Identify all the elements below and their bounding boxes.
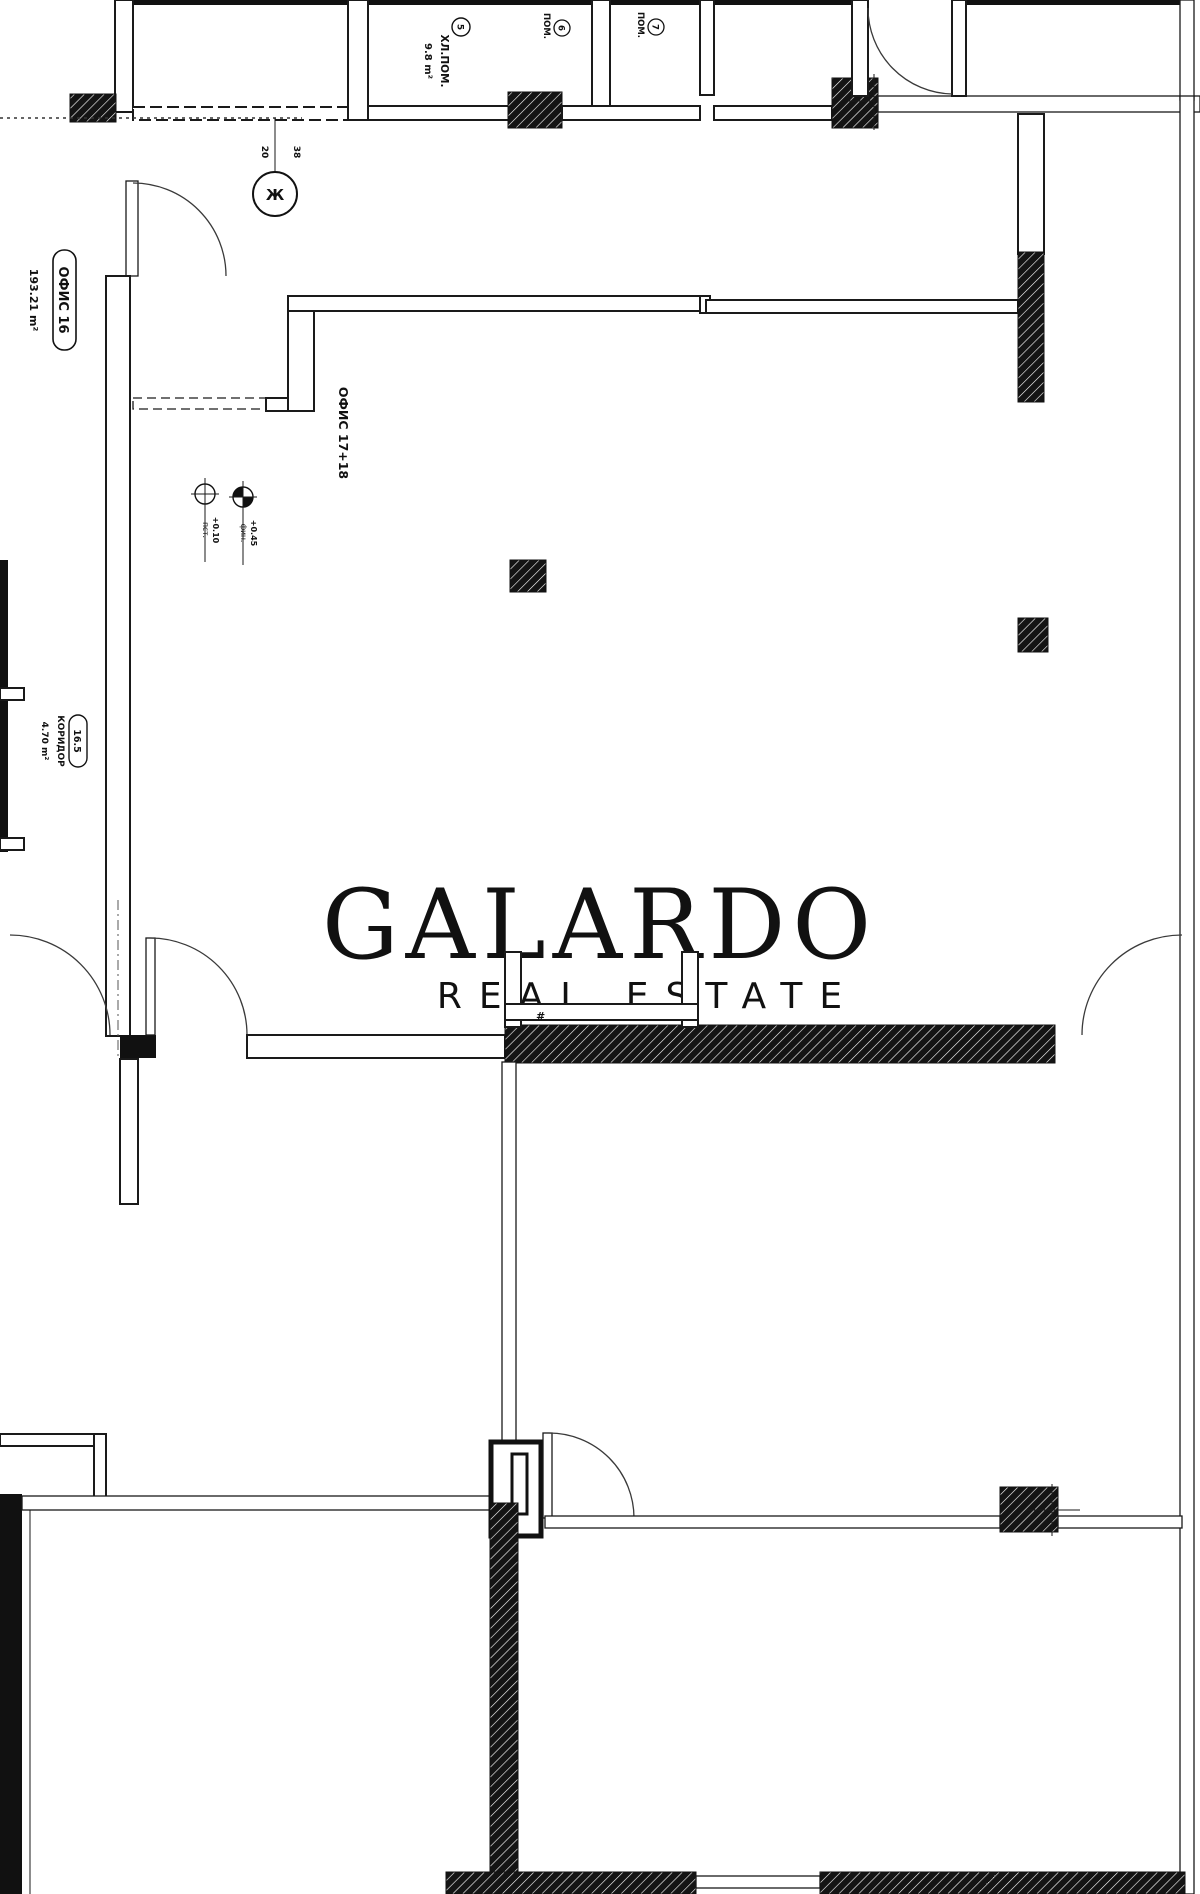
level-marker-right-quadrant-nw [233,487,243,497]
storeroom-name: ХЛ.ПОМ. [438,35,450,88]
room-label-corridor: 16.5 КОРИДОР 4.70 m² [39,715,87,767]
wall-room-divider-a [348,0,368,120]
wall-mid-stub-left [120,1035,156,1058]
corridor-area: 4.70 m² [39,722,49,761]
wall-bottom-hatched-right [820,1872,1185,1894]
room-label-7: 7 ПОМ. [635,12,664,38]
lower-center-walls [490,1062,1182,1894]
corridor-name: КОРИДОР [55,715,65,767]
wall-top-horizontal-3 [714,106,832,120]
axis-dim-a-text: 20 [259,146,269,159]
corridor-tag: 16.5 [71,729,82,752]
wall-mid-hatched [505,1025,1055,1063]
wall-right-edge [1180,96,1194,1894]
hash-mark: # [536,1010,545,1023]
wall-entry-post-right [952,0,966,96]
wall-partition-dashed [133,398,268,409]
storeroom-tag: 5 [455,24,465,30]
door-arc-top-entry [868,8,952,94]
room-label-storeroom: 5 ХЛ.ПОМ. 9.8 m² [422,18,470,87]
wall-pier-top-center [508,92,562,128]
wall-step-vertical [288,296,314,411]
wall-top-horizontal-2 [562,106,700,120]
lower-left-walls [0,1059,492,1894]
wall-top-horizontal-1 [368,106,510,120]
wall-bigroom-top-2 [706,300,1018,313]
wall-bottom-hatched-left [446,1872,696,1894]
storeroom-area: 9.8 m² [422,43,433,79]
office16-area: 193.21 m² [27,269,40,332]
door-leaf-lower [543,1433,552,1518]
room7-tag: 7 [650,24,660,30]
wall-bottom-window [696,1876,820,1888]
level-right-note: фин. [239,524,248,543]
top-strip-walls [70,0,1200,130]
wall-lowerleft-vertical [120,1059,138,1204]
wall-right-solid-bar [1018,252,1044,402]
door-arc-mid-right [1082,935,1182,1035]
floor-plan-drawing: GALARDO REAL ESTATE Ж 20 38 [0,0,1200,1894]
room6-name: ПОМ. [541,13,551,39]
level-right-label: +0.45 фин. [239,520,258,547]
door-arc-corridor [10,935,110,1035]
column-pier-b [1018,618,1048,652]
room-label-office16: ОФИС 16 193.21 m² [27,250,76,350]
level-right-value: +0.45 [249,520,258,547]
bottom-walls [446,1872,1185,1894]
wall-mid-double [247,1035,505,1058]
door-leaf-mid-left [146,938,155,1035]
watermark: GALARDO REAL ESTATE [322,869,878,1017]
axis-dim-b: 38 [291,146,301,159]
watermark-title: GALARDO [322,869,878,981]
room6-tag: 6 [556,25,566,31]
wall-left-stub-2 [0,838,24,850]
office16-name: ОФИС 16 [55,267,70,334]
level-left-label: +0.10 пст. [201,517,220,544]
door-leaf-upper-left [126,181,138,276]
level-left-value: +0.10 [211,517,220,544]
floor-plan-page: GALARDO REAL ESTATE Ж 20 38 [0,0,1200,1894]
wall-lower-room-top-right [1058,1516,1182,1528]
wall-lowerleft-step-h [0,1434,104,1446]
level-left-note: пст. [201,522,210,538]
column-pier-a [510,560,546,592]
axis-dim-b-text: 38 [291,146,301,159]
axis-bubble-label: Ж [266,186,285,204]
level-markers: +0.10 пст. +0.45 фин. [191,478,258,565]
wall-entry-post-left [852,0,868,96]
wall-bottomleft-room-top [22,1496,492,1510]
wall-top-edge-right [952,0,1194,5]
wall-room-divider-c [700,0,714,95]
door-arc-lower [549,1433,634,1518]
office1718-name: ОФИС 17+18 [336,387,351,479]
room-label-office1718: ОФИС 17+18 [336,387,351,479]
axis-marker: Ж 20 38 [0,118,302,216]
wall-bottomleft-solid [0,1494,22,1894]
door-arc-upper-left [133,183,226,276]
wall-lower-room-top [545,1516,1000,1528]
room7-name: ПОМ. [635,12,645,38]
wall-lower-hatched-vertical [490,1503,518,1894]
wall-top-left-vertical [115,0,133,112]
wall-lowerleft-step-v [94,1434,106,1500]
wall-room-divider-b [592,0,610,106]
wall-right-top-corner [1180,0,1194,100]
wall-top-edge-left [115,0,866,5]
wall-left-edge [0,560,8,852]
wall-right-upper [1018,114,1044,254]
axis-dim-a: 20 [259,146,269,159]
door-arc-mid-left [150,938,247,1035]
niche-cross-bar [505,1004,698,1020]
level-marker-right-quadrant-se [243,497,253,507]
room-label-6: 6 ПОМ. [541,13,570,39]
wall-left-stub-1 [0,688,24,700]
wall-top-right-thin [878,96,1200,112]
wall-lower-thin-vertical [502,1062,516,1445]
wall-bigroom-top-1 [288,296,708,311]
